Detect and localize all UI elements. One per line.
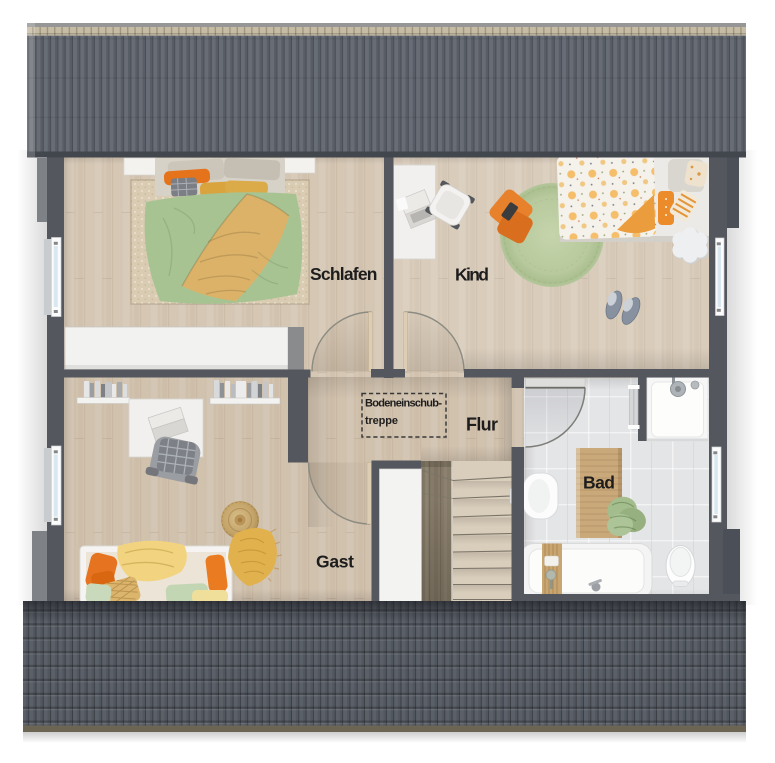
- svg-text:Schlafen: Schlafen: [310, 264, 378, 284]
- svg-text:treppe: treppe: [365, 415, 398, 427]
- svg-text:Flur: Flur: [466, 415, 498, 435]
- svg-text:Gast: Gast: [316, 552, 354, 572]
- svg-text:Kind: Kind: [455, 265, 489, 285]
- svg-text:Bad: Bad: [583, 473, 615, 493]
- svg-text:Bodeneinschub-: Bodeneinschub-: [365, 398, 442, 410]
